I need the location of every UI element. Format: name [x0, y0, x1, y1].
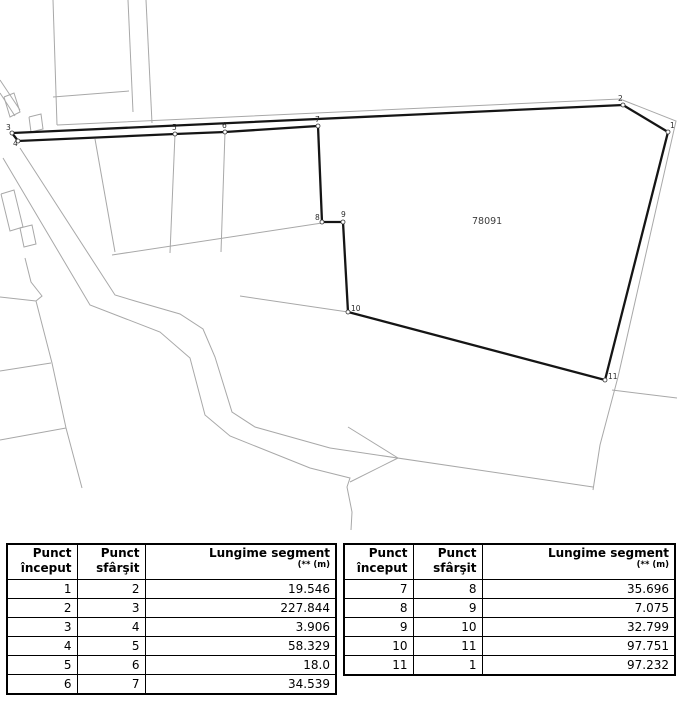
vertex-label-4: 4	[13, 139, 18, 148]
neighbor-line	[0, 297, 36, 301]
col-header-end: Punctsfârşit	[77, 544, 145, 580]
table-row: 23227.844	[7, 599, 336, 618]
cell-segment-length: 18.0	[145, 656, 336, 675]
vertex-point-7	[316, 124, 320, 128]
neighbor-line	[53, 91, 129, 97]
cell-end-point: 7	[77, 675, 145, 695]
neighbor-line	[612, 390, 677, 398]
neighbor-line	[29, 114, 43, 132]
table-row: 5618.0	[7, 656, 336, 675]
neighbor-line	[0, 363, 51, 371]
vertex-point-6	[223, 130, 227, 134]
col-header-end: Punctsfârşit	[413, 544, 482, 580]
segments-table-right: Punctînceput Punctsfârşit Lungime segmen…	[343, 543, 676, 676]
cell-segment-length: 34.539	[145, 675, 336, 695]
cell-end-point: 6	[77, 656, 145, 675]
neighbor-line	[146, 0, 152, 123]
neighbor-line	[330, 448, 593, 487]
cell-end-point: 2	[77, 580, 145, 599]
cell-segment-length: 32.799	[482, 618, 675, 637]
neighbor-line	[0, 428, 66, 440]
cell-end-point: 11	[413, 637, 482, 656]
col-header-start: Punctînceput	[344, 544, 413, 580]
parcel-boundary	[12, 105, 668, 380]
table-row: 897.075	[344, 599, 675, 618]
neighbor-line	[350, 458, 398, 482]
vertex-label-7: 7	[315, 115, 320, 124]
vertex-point-9	[341, 220, 345, 224]
cell-segment-length: 97.232	[482, 656, 675, 676]
vertex-label-9: 9	[341, 210, 346, 219]
cell-segment-length: 19.546	[145, 580, 336, 599]
vertex-label-2: 2	[618, 94, 623, 103]
table-row: 343.906	[7, 618, 336, 637]
cell-start-point: 5	[7, 656, 77, 675]
cell-segment-length: 58.329	[145, 637, 336, 656]
vertex-point-2	[621, 103, 625, 107]
neighbor-line	[53, 0, 57, 125]
cell-segment-length: 35.696	[482, 580, 675, 599]
neighbor-line	[112, 223, 322, 255]
neighbor-line	[20, 148, 330, 448]
cell-segment-length: 97.751	[482, 637, 675, 656]
cell-end-point: 4	[77, 618, 145, 637]
cell-segment-length: 7.075	[482, 599, 675, 618]
neighbor-line	[20, 225, 36, 247]
cell-start-point: 10	[344, 637, 413, 656]
table-row: 1219.546	[7, 580, 336, 599]
cell-segment-length: 227.844	[145, 599, 336, 618]
neighbor-line	[36, 301, 82, 488]
cell-end-point: 5	[77, 637, 145, 656]
neighbor-line	[4, 93, 20, 117]
vertex-point-8	[320, 220, 324, 224]
cell-start-point: 1	[7, 580, 77, 599]
vertex-point-10	[346, 310, 350, 314]
table-row: 91032.799	[344, 618, 675, 637]
col-header-start: Punctînceput	[7, 544, 77, 580]
segments-table-left: Punctînceput Punctsfârşit Lungime segmen…	[6, 543, 337, 695]
vertex-point-5	[173, 132, 177, 136]
neighbor-line	[170, 134, 175, 253]
cell-start-point: 11	[344, 656, 413, 676]
cell-end-point: 9	[413, 599, 482, 618]
vertex-label-3: 3	[6, 123, 11, 132]
table-row: 4558.329	[7, 637, 336, 656]
parcel-78091-outline: 78091	[12, 105, 668, 380]
cell-start-point: 7	[344, 580, 413, 599]
cell-segment-length: 3.906	[145, 618, 336, 637]
cell-end-point: 10	[413, 618, 482, 637]
cell-start-point: 4	[7, 637, 77, 656]
cell-start-point: 6	[7, 675, 77, 695]
vertex-markers	[10, 103, 670, 382]
parcel-number-label: 78091	[472, 216, 502, 227]
cell-start-point: 8	[344, 599, 413, 618]
neighbor-line	[348, 427, 398, 458]
vertex-point-1	[666, 130, 670, 134]
vertex-label-5: 5	[172, 123, 177, 132]
col-header-length: Lungime segment(** (m)	[145, 544, 336, 580]
cell-end-point: 3	[77, 599, 145, 618]
col-header-length: Lungime segment(** (m)	[482, 544, 675, 580]
neighbor-line	[95, 139, 115, 252]
neighbor-line	[240, 296, 348, 312]
cell-start-point: 9	[344, 618, 413, 637]
vertex-label-1: 1	[670, 121, 675, 130]
cell-end-point: 1	[413, 656, 482, 676]
neighbor-line	[57, 99, 676, 490]
neighbor-line	[221, 132, 225, 252]
cell-start-point: 2	[7, 599, 77, 618]
cell-start-point: 3	[7, 618, 77, 637]
vertex-label-10: 10	[351, 304, 361, 313]
cadastral-map: 78091 1234567891011	[0, 0, 678, 535]
cell-end-point: 8	[413, 580, 482, 599]
vertex-label-8: 8	[315, 213, 320, 222]
neighbor-line	[0, 93, 15, 116]
neighbor-line	[1, 190, 23, 231]
vertex-label-6: 6	[222, 121, 227, 130]
neighbor-line	[128, 0, 133, 112]
vertex-point-11	[603, 378, 607, 382]
neighbor-line	[3, 158, 352, 530]
table-row: 101197.751	[344, 637, 675, 656]
table-row: 6734.539	[7, 675, 336, 695]
table-row: 11197.232	[344, 656, 675, 676]
cadastral-plan-page: 78091 1234567891011 Punctînceput Punctsf…	[0, 0, 678, 720]
neighbor-parcel-lines	[0, 0, 677, 530]
vertex-label-11: 11	[608, 372, 618, 381]
neighbor-line	[25, 258, 42, 301]
table-row: 7835.696	[344, 580, 675, 599]
